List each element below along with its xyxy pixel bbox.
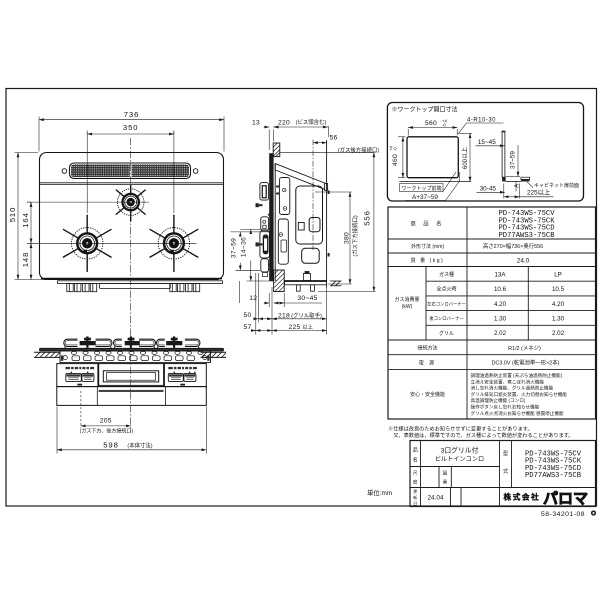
svg-text:度: 度	[413, 479, 418, 486]
svg-text:商 品 名: 商 品 名	[410, 220, 444, 228]
svg-text:218: 218	[278, 312, 290, 319]
svg-text:225以上: 225以上	[527, 188, 551, 197]
svg-text:グリル点火点消火お知らせ機能 感震停止機能: グリル点火点消火お知らせ機能 感震停止機能	[471, 410, 564, 417]
svg-text:番: 番	[443, 479, 448, 486]
svg-text:30~45: 30~45	[297, 295, 317, 302]
svg-text:(本体寸法): (本体寸法)	[127, 441, 152, 449]
svg-text:57: 57	[243, 324, 251, 331]
svg-text:名: 名	[413, 457, 418, 464]
svg-text:4.20: 4.20	[552, 301, 565, 308]
svg-text:205: 205	[100, 417, 112, 424]
svg-text:ガス種: ガス種	[439, 271, 454, 278]
svg-text:510: 510	[8, 207, 17, 223]
svg-text:質 量 (kg): 質 量 (kg)	[411, 257, 444, 264]
svg-text:225: 225	[288, 324, 300, 331]
svg-text:1.30: 1.30	[494, 316, 507, 323]
svg-text:ガス消費量: ガス消費量	[394, 296, 419, 303]
svg-text:148: 148	[21, 252, 30, 268]
svg-text:12: 12	[249, 295, 257, 302]
svg-text:(ガス下方接続口): (ガス下方接続口)	[351, 215, 359, 257]
svg-text:560: 560	[425, 120, 437, 127]
svg-text:220: 220	[278, 119, 290, 126]
svg-text:操作ボタン戻し忘れお知らせ機能: 操作ボタン戻し忘れお知らせ機能	[471, 404, 540, 411]
svg-text:電 源: 電 源	[419, 359, 436, 366]
svg-text:立消え安全装置、煮こぼれ消火機能: 立消え安全装置、煮こぼれ消火機能	[471, 378, 545, 385]
svg-text:消し忘れ消火機能、グリル過熱防止機能: 消し忘れ消火機能、グリル過熱防止機能	[471, 385, 554, 392]
svg-text:15~45: 15~45	[478, 139, 496, 146]
svg-text:新: 新	[413, 494, 417, 501]
svg-text:単位:mm: 単位:mm	[367, 488, 392, 497]
svg-text:グリル排気口遮炎装置、火力切替お知らせ機能: グリル排気口遮炎装置、火力切替お知らせ機能	[471, 391, 568, 398]
svg-text:接続方法: 接続方法	[417, 345, 437, 352]
svg-text:高さ270×幅736×奥行556: 高さ270×幅736×奥行556	[483, 242, 543, 250]
svg-text:164: 164	[21, 212, 30, 228]
svg-text:全点火時: 全点火時	[436, 286, 456, 293]
svg-text:調理油過熱防止装置 (天ぷら油過熱防止機能): 調理油過熱防止装置 (天ぷら油過熱防止機能)	[471, 372, 563, 379]
svg-text:後コンロバーナー: 後コンロバーナー	[429, 315, 463, 322]
svg-text:37~59: 37~59	[509, 151, 516, 169]
svg-text:350: 350	[123, 123, 139, 132]
svg-text:ワークトップ前端: ワークトップ前端	[402, 185, 442, 192]
svg-text:(kW): (kW)	[402, 304, 413, 310]
svg-text:(ガス下方、後方接続口): (ガス下方、後方接続口)	[80, 428, 134, 435]
svg-text:24.04: 24.04	[428, 495, 444, 502]
svg-text:56: 56	[329, 135, 337, 142]
svg-text:パロマ: パロマ	[543, 491, 588, 508]
svg-text:2.02: 2.02	[494, 330, 507, 337]
svg-text:R1/2 (メネジ): R1/2 (メネジ)	[508, 345, 541, 352]
svg-text:4.20: 4.20	[494, 301, 507, 308]
svg-text:(ビス頭含む): (ビス頭含む)	[296, 118, 327, 126]
svg-text:※ワークトップ開口寸法: ※ワークトップ開口寸法	[392, 105, 458, 113]
svg-text:LP: LP	[554, 271, 562, 278]
svg-text:30-45: 30-45	[480, 186, 497, 193]
svg-text:14~36: 14~36	[241, 237, 248, 257]
svg-text:以上: 以上	[302, 323, 313, 331]
svg-text:株式会社: 株式会社	[504, 492, 541, 502]
svg-text:※仕様は改良のためお知らせせずに変更することがあります。: ※仕様は改良のためお知らせせずに変更することがあります。	[388, 425, 533, 433]
svg-text:PD77AWS3-75CB: PD77AWS3-75CB	[498, 232, 555, 240]
svg-text:13A: 13A	[494, 271, 506, 278]
svg-text:600以上: 600以上	[461, 147, 469, 169]
svg-text:A+37~59: A+37~59	[412, 194, 438, 201]
svg-text:4-R10-30: 4-R10-30	[467, 117, 496, 123]
svg-text:460: 460	[392, 154, 399, 166]
svg-text:37~59: 37~59	[231, 238, 238, 258]
svg-text:380: 380	[343, 232, 350, 244]
svg-text:10.5: 10.5	[552, 286, 565, 293]
svg-text:外形寸法 (mm): 外形寸法 (mm)	[411, 243, 444, 250]
svg-text:50: 50	[243, 312, 251, 319]
svg-text:58-34201-08: 58-34201-08	[541, 511, 585, 518]
svg-text:品: 品	[413, 448, 418, 454]
svg-text:ビルトインコンロ: ビルトインコンロ	[435, 455, 485, 463]
svg-text:2.02: 2.02	[552, 330, 565, 337]
svg-text:安心・安全機能: 安心・安全機能	[410, 391, 445, 398]
svg-text:598: 598	[103, 441, 119, 450]
svg-text:736: 736	[124, 110, 140, 119]
svg-text:PD77AWS3-75CB: PD77AWS3-75CB	[525, 472, 582, 480]
svg-text:1.30: 1.30	[552, 316, 565, 323]
svg-text:左右コンロバーナー: 左右コンロバーナー	[427, 300, 466, 307]
svg-text:24.0: 24.0	[517, 257, 530, 264]
svg-text:キャビネット扉前面: キャビネット扉前面	[534, 182, 579, 189]
svg-text:3口グリル付: 3口グリル付	[441, 445, 479, 454]
svg-text:グリル: グリル	[439, 330, 454, 337]
svg-text:又、表数値は、標準ですので、ガス種によって数値が変わることが: 又、表数値は、標準ですので、ガス種によって数値が変わることがあります。	[388, 431, 574, 439]
svg-text:13: 13	[252, 119, 260, 126]
svg-text:A: A	[515, 184, 521, 188]
svg-text:(グリル取手): (グリル取手)	[291, 312, 322, 320]
svg-text:高温調理防止機能 (コンロ): 高温調理防止機能 (コンロ)	[471, 397, 526, 404]
svg-text:556: 556	[363, 210, 372, 226]
svg-text:型: 型	[503, 450, 508, 457]
svg-text:10.6: 10.6	[494, 286, 507, 293]
svg-text:DC3.0V (乾電池単一形×2本): DC3.0V (乾電池単一形×2本)	[492, 359, 560, 367]
svg-text:式: 式	[503, 468, 508, 475]
